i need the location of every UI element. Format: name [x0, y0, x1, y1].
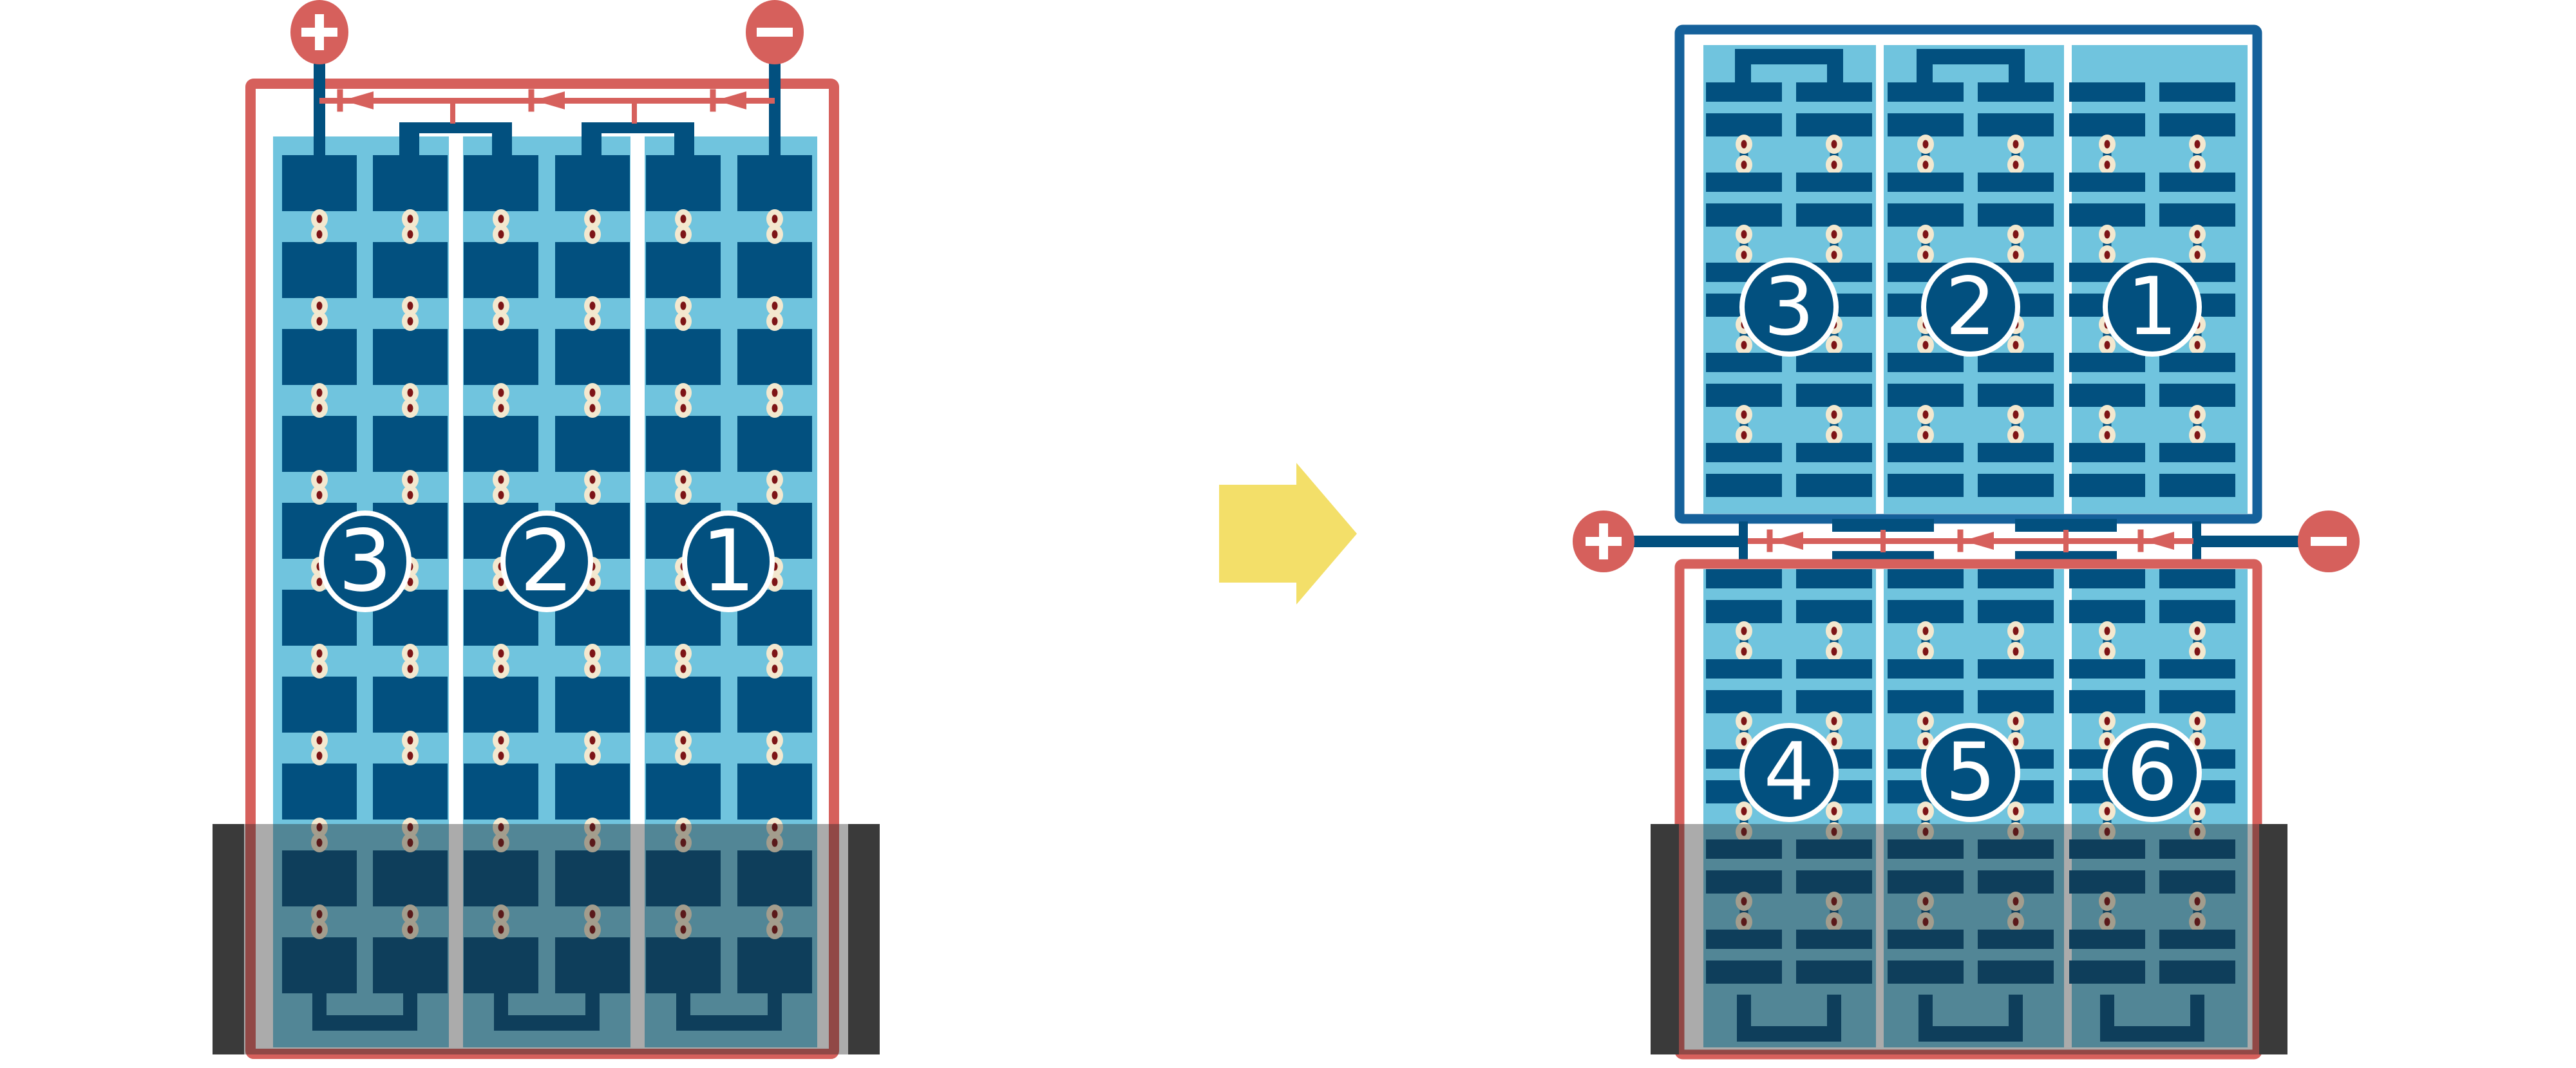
string-number-badge: 6 [2105, 726, 2199, 820]
string-number-badge: 1 [685, 512, 772, 611]
bypass-diode-icon [710, 89, 747, 112]
solder-dot-core [2013, 341, 2019, 350]
solar-cell [282, 764, 357, 820]
solder-dot-core [2013, 717, 2019, 726]
solar-cell [646, 764, 721, 820]
positive-terminal [290, 0, 348, 64]
half-cell [1706, 569, 1782, 588]
solar-cell [646, 677, 721, 733]
shade-post-right [2259, 824, 2287, 1054]
diode-cathode-bar [2138, 530, 2144, 552]
half-cell [1978, 569, 2054, 588]
solar-cell [737, 155, 812, 211]
solder-dot-core [681, 736, 687, 745]
half-cell [1978, 659, 2054, 679]
half-cell [1706, 203, 1782, 227]
half-cell [1796, 659, 1872, 679]
diagram-stage: 321321456 [0, 0, 2576, 1068]
solder-dot-core [2195, 411, 2201, 419]
solder-dot-core [408, 476, 413, 484]
solar-cell [282, 329, 357, 385]
half-cell [1706, 173, 1782, 192]
half-cell [2069, 113, 2145, 136]
solder-dot-core [317, 578, 323, 586]
solder-dot-core [408, 389, 413, 397]
solder-dot-core [498, 736, 504, 745]
bridge-leg [1917, 49, 1933, 85]
bus-tap [2063, 530, 2069, 552]
shade-overlay [1651, 824, 2287, 1054]
solder-dot-core [772, 736, 778, 745]
half-cell [2159, 173, 2235, 192]
solder-dot-core [2195, 230, 2201, 239]
half-cell [2069, 353, 2145, 372]
solder-dot-core [2105, 648, 2110, 656]
solder-dot-core [2013, 807, 2019, 816]
solder-dot-core [408, 302, 413, 310]
solar-cell [373, 155, 448, 211]
solar-cell [737, 416, 812, 472]
solder-dot-core [681, 665, 687, 673]
minus-icon [2311, 537, 2347, 546]
solar-cell [737, 242, 812, 298]
solder-dot-core [2013, 230, 2019, 239]
half-cell [1796, 173, 1872, 192]
half-cell [2069, 82, 2145, 102]
solder-dot-core [317, 404, 323, 413]
solar-cell [282, 677, 357, 733]
solder-dot-core [590, 578, 596, 586]
solar-cell [464, 764, 538, 820]
solder-dot-core [681, 215, 687, 223]
solder-dot-core [2105, 411, 2110, 419]
solder-dot-core [498, 215, 504, 223]
solder-dot-core [2013, 251, 2019, 259]
solder-dot-core [1832, 341, 1837, 350]
solder-dot-core [317, 752, 323, 760]
solder-dot-core [408, 215, 413, 223]
half-cell [1978, 600, 2054, 623]
solder-dot-core [2013, 140, 2019, 149]
bridge-leg [1735, 49, 1751, 85]
string-number-badge: 5 [1924, 726, 2018, 820]
string-number-badge: 2 [503, 512, 591, 611]
half-cell [1978, 353, 2054, 372]
solar-cell [464, 677, 538, 733]
shadow-region [1651, 824, 2287, 1054]
half-cell [2159, 82, 2235, 102]
half-cell [1706, 600, 1782, 623]
half-cell [2069, 443, 2145, 462]
bus-tap [450, 100, 455, 124]
half-cell [1796, 82, 1872, 102]
half-cell [2069, 384, 2145, 407]
half-cell [1978, 690, 2054, 713]
solder-dot-core [1923, 251, 1929, 259]
shade-post-left [1651, 824, 1679, 1054]
solder-dot-core [498, 317, 504, 326]
solder-dot-core [590, 302, 596, 310]
half-cell [1796, 600, 1872, 623]
solder-dot-core [590, 230, 596, 239]
string-number: 3 [1764, 261, 1815, 353]
bypass-diode-icon [337, 89, 374, 112]
half-cell [1706, 113, 1782, 136]
solder-dot-core [772, 404, 778, 413]
half-cell [2159, 600, 2235, 623]
half-cell [1796, 474, 1872, 497]
solder-dot-core [1923, 161, 1929, 169]
diode-triangle [1963, 532, 1994, 550]
half-cell [1706, 659, 1782, 679]
solder-dot-core [1832, 230, 1837, 239]
solar-cell [373, 764, 448, 820]
solder-dot-core [772, 650, 778, 658]
solder-dot-core [2105, 341, 2110, 350]
solder-dot-core [408, 317, 413, 326]
solder-dot-core [317, 476, 323, 484]
solder-dot-core [1832, 411, 1837, 419]
solder-dot-core [2195, 627, 2201, 635]
half-cell [1978, 82, 2054, 102]
solder-dot-core [2195, 341, 2201, 350]
bypass-diode-icon [1767, 530, 1804, 552]
solder-dot-core [2105, 161, 2110, 169]
solder-dot-core [1741, 161, 1747, 169]
solder-dot-core [1923, 717, 1929, 726]
solder-dot-core [1923, 411, 1929, 419]
solder-dot-core [1923, 627, 1929, 635]
diode-cathode-bar [337, 89, 343, 112]
half-cell [1888, 113, 1964, 136]
solder-dot-core [2013, 738, 2019, 746]
solder-dot-core [1741, 738, 1747, 746]
string-number-badge: 1 [2105, 260, 2199, 354]
solder-dot-core [408, 665, 413, 673]
positive-terminal [1573, 511, 1634, 572]
solder-dot-core [1832, 738, 1837, 746]
half-cell [1888, 82, 1964, 102]
half-cell [1796, 353, 1872, 372]
solar-cell [555, 677, 630, 733]
solder-dot-core [1741, 627, 1747, 635]
solar-module-wiring-diagram: 321321456 [0, 0, 2576, 1068]
bridge-bar [1737, 49, 1841, 64]
solder-dot-core [498, 578, 504, 586]
half-cell [1888, 690, 1964, 713]
diode-triangle [715, 91, 746, 109]
solder-dot-core [408, 736, 413, 745]
solder-dot-core [498, 389, 504, 397]
solar-cell [373, 242, 448, 298]
solar-cell [555, 416, 630, 472]
solder-dot-core [1923, 648, 1929, 656]
half-cell [2159, 474, 2235, 497]
solder-dot-core [590, 389, 596, 397]
negative-terminal-stem [769, 61, 781, 155]
solder-dot-core [1923, 807, 1929, 816]
half-cell [2159, 443, 2235, 462]
left-module: 321 [213, 0, 880, 1054]
solder-dot-core [2195, 648, 2201, 656]
solder-dot-core [498, 230, 504, 239]
half-cell [1706, 353, 1782, 372]
half-cell [2159, 113, 2235, 136]
solder-dot-core [408, 404, 413, 413]
solder-dot-core [681, 230, 687, 239]
solder-dot-core [1923, 738, 1929, 746]
solder-dot-core [2013, 627, 2019, 635]
solder-dot-core [2013, 648, 2019, 656]
solder-dot-core [2195, 807, 2201, 816]
string-number: 2 [520, 512, 574, 611]
solder-dot-core [1923, 431, 1929, 440]
solar-cell [646, 242, 721, 298]
half-cell [2159, 384, 2235, 407]
solder-dot-core [498, 665, 504, 673]
solder-dot-core [2195, 161, 2201, 169]
solder-dot-core [2105, 230, 2110, 239]
solder-dot-core [408, 230, 413, 239]
half-cell [1796, 113, 1872, 136]
solder-dot-core [590, 650, 596, 658]
solder-dot-core [2105, 627, 2110, 635]
half-cell [1888, 443, 1964, 462]
string-number-badge: 3 [321, 512, 409, 611]
bypass-diode-icon [2138, 530, 2175, 552]
half-cell [1796, 443, 1872, 462]
solder-dot-core [498, 476, 504, 484]
half-cell [1706, 82, 1782, 102]
half-cell [1978, 384, 2054, 407]
shadow-region [213, 824, 880, 1054]
solder-dot-core [2013, 411, 2019, 419]
solar-cell [282, 242, 357, 298]
solar-cell [464, 416, 538, 472]
solder-dot-core [1741, 431, 1747, 440]
solder-dot-core [590, 491, 596, 500]
solder-dot-core [1832, 431, 1837, 440]
solder-dot-core [772, 317, 778, 326]
solar-cell [464, 329, 538, 385]
half-cell [2159, 203, 2235, 227]
solder-dot-core [498, 752, 504, 760]
solder-dot-core [1741, 807, 1747, 816]
half-cell [1706, 474, 1782, 497]
solder-dot-core [1832, 807, 1837, 816]
solar-cell [646, 329, 721, 385]
solder-dot-core [2195, 717, 2201, 726]
solder-dot-core [2105, 251, 2110, 259]
shade-overlay [213, 824, 880, 1054]
solder-dot-core [681, 476, 687, 484]
negative-terminal [2298, 511, 2360, 572]
string-number: 1 [701, 512, 755, 611]
solder-dot-core [317, 215, 323, 223]
solar-cell [555, 242, 630, 298]
solder-dot-core [2195, 140, 2201, 149]
half-cell [1888, 203, 1964, 227]
solder-dot-core [317, 302, 323, 310]
half-cell [2069, 569, 2145, 588]
solder-dot-core [681, 650, 687, 658]
solder-dot-core [498, 302, 504, 310]
negative-terminal [746, 0, 804, 64]
bridge-leg [492, 122, 512, 155]
bridge-bar [1918, 49, 2023, 64]
solder-dot-core [590, 752, 596, 760]
diode-triangle [343, 91, 374, 109]
bus-tap [1880, 530, 1886, 552]
solder-dot-core [498, 404, 504, 413]
positive-terminal-stem [314, 61, 325, 155]
solder-dot-core [408, 491, 413, 500]
solder-dot-core [317, 317, 323, 326]
solder-dot-core [772, 491, 778, 500]
solder-dot-core [772, 215, 778, 223]
half-cell [1978, 173, 2054, 192]
solar-cell [737, 677, 812, 733]
solder-dot-core [1741, 140, 1747, 149]
diode-triangle [1772, 532, 1803, 550]
solar-cell [737, 329, 812, 385]
solder-dot-core [317, 491, 323, 500]
half-cell [2069, 690, 2145, 713]
solder-dot-core [1741, 230, 1747, 239]
solder-dot-core [1832, 251, 1837, 259]
solder-dot-core [590, 476, 596, 484]
solder-dot-core [2105, 717, 2110, 726]
solder-dot-core [1741, 717, 1747, 726]
string-number: 3 [338, 512, 392, 611]
solar-cell [555, 155, 630, 211]
solder-dot-core [1832, 717, 1837, 726]
half-cell [1706, 690, 1782, 713]
solar-cell [646, 155, 721, 211]
solder-dot-core [681, 317, 687, 326]
string-number-badge: 3 [1742, 260, 1836, 354]
half-cell [2069, 173, 2145, 192]
half-cell [2069, 659, 2145, 679]
solder-dot-core [1832, 627, 1837, 635]
solder-dot-core [590, 736, 596, 745]
half-cell [2069, 203, 2145, 227]
solder-dot-core [2013, 431, 2019, 440]
solder-dot-core [1741, 648, 1747, 656]
solar-cell [555, 764, 630, 820]
bus-tap [632, 100, 637, 124]
solar-cell [737, 764, 812, 820]
half-cell [1796, 384, 1872, 407]
half-cell [1706, 443, 1782, 462]
solder-dot-core [1923, 341, 1929, 350]
negative-terminal-bar [2192, 536, 2312, 547]
string-number: 1 [2127, 261, 2178, 353]
diode-triangle [534, 91, 565, 109]
solder-dot-core [498, 491, 504, 500]
bypass-diode-icon [529, 89, 565, 112]
solar-cell [373, 677, 448, 733]
solder-dot-core [317, 389, 323, 397]
solder-dot-core [2105, 738, 2110, 746]
plus-icon [1599, 523, 1608, 559]
solder-dot-core [772, 476, 778, 484]
diode-bus [319, 89, 775, 124]
half-cell [1888, 173, 1964, 192]
shade-post-left [213, 824, 244, 1054]
half-cell [1796, 203, 1872, 227]
right-module-top-half: 321 [1680, 30, 2257, 519]
solder-dot-core [1741, 341, 1747, 350]
solar-cell [282, 416, 357, 472]
solder-dot-core [1923, 230, 1929, 239]
string-number: 4 [1764, 726, 1815, 819]
bridge-leg [2009, 49, 2025, 85]
string-number: 5 [1946, 726, 1996, 819]
solder-dot-core [590, 317, 596, 326]
diode-cathode-bar [1767, 530, 1773, 552]
solder-dot-core [772, 230, 778, 239]
solder-dot-core [772, 389, 778, 397]
shade-post-right [848, 824, 880, 1054]
solar-cell [282, 155, 357, 211]
half-cell [1796, 569, 1872, 588]
solder-dot-core [408, 650, 413, 658]
solar-cell [464, 242, 538, 298]
half-cell [1978, 474, 2054, 497]
solar-cell [373, 329, 448, 385]
solder-dot-core [772, 578, 778, 586]
solder-dot-core [1741, 251, 1747, 259]
solder-dot-core [317, 230, 323, 239]
solder-dot-core [498, 650, 504, 658]
half-cell [1888, 600, 1964, 623]
half-cell [1978, 203, 2054, 227]
solder-dot-core [681, 404, 687, 413]
positive-terminal-bar [1623, 536, 1748, 547]
solder-dot-core [590, 665, 596, 673]
half-cell [1888, 384, 1964, 407]
diode-cathode-bar [529, 89, 535, 112]
solder-dot-core [317, 665, 323, 673]
half-cell [1978, 443, 2054, 462]
solder-dot-core [2105, 431, 2110, 440]
bypass-diode-icon [1958, 530, 1994, 552]
solder-dot-core [681, 389, 687, 397]
solder-dot-core [2105, 807, 2110, 816]
solder-dot-core [1832, 161, 1837, 169]
minus-icon [757, 28, 793, 37]
string-number: 2 [1946, 261, 1996, 353]
solder-dot-core [1741, 411, 1747, 419]
diode-cathode-bar [710, 89, 716, 112]
solder-dot-core [2013, 161, 2019, 169]
solder-dot-core [590, 404, 596, 413]
transform-arrow-icon [1219, 463, 1357, 604]
solder-dot-core [681, 491, 687, 500]
half-cell [2069, 600, 2145, 623]
solder-dot-core [2105, 140, 2110, 149]
solar-cell [464, 155, 538, 211]
half-cell [1706, 384, 1782, 407]
solar-cell [373, 416, 448, 472]
right-module: 321456 [1573, 30, 2360, 1054]
bridge-leg [399, 122, 419, 155]
solder-dot-core [2195, 738, 2201, 746]
half-cell [1888, 353, 1964, 372]
bridge-leg [1827, 49, 1843, 85]
half-cell [1796, 690, 1872, 713]
